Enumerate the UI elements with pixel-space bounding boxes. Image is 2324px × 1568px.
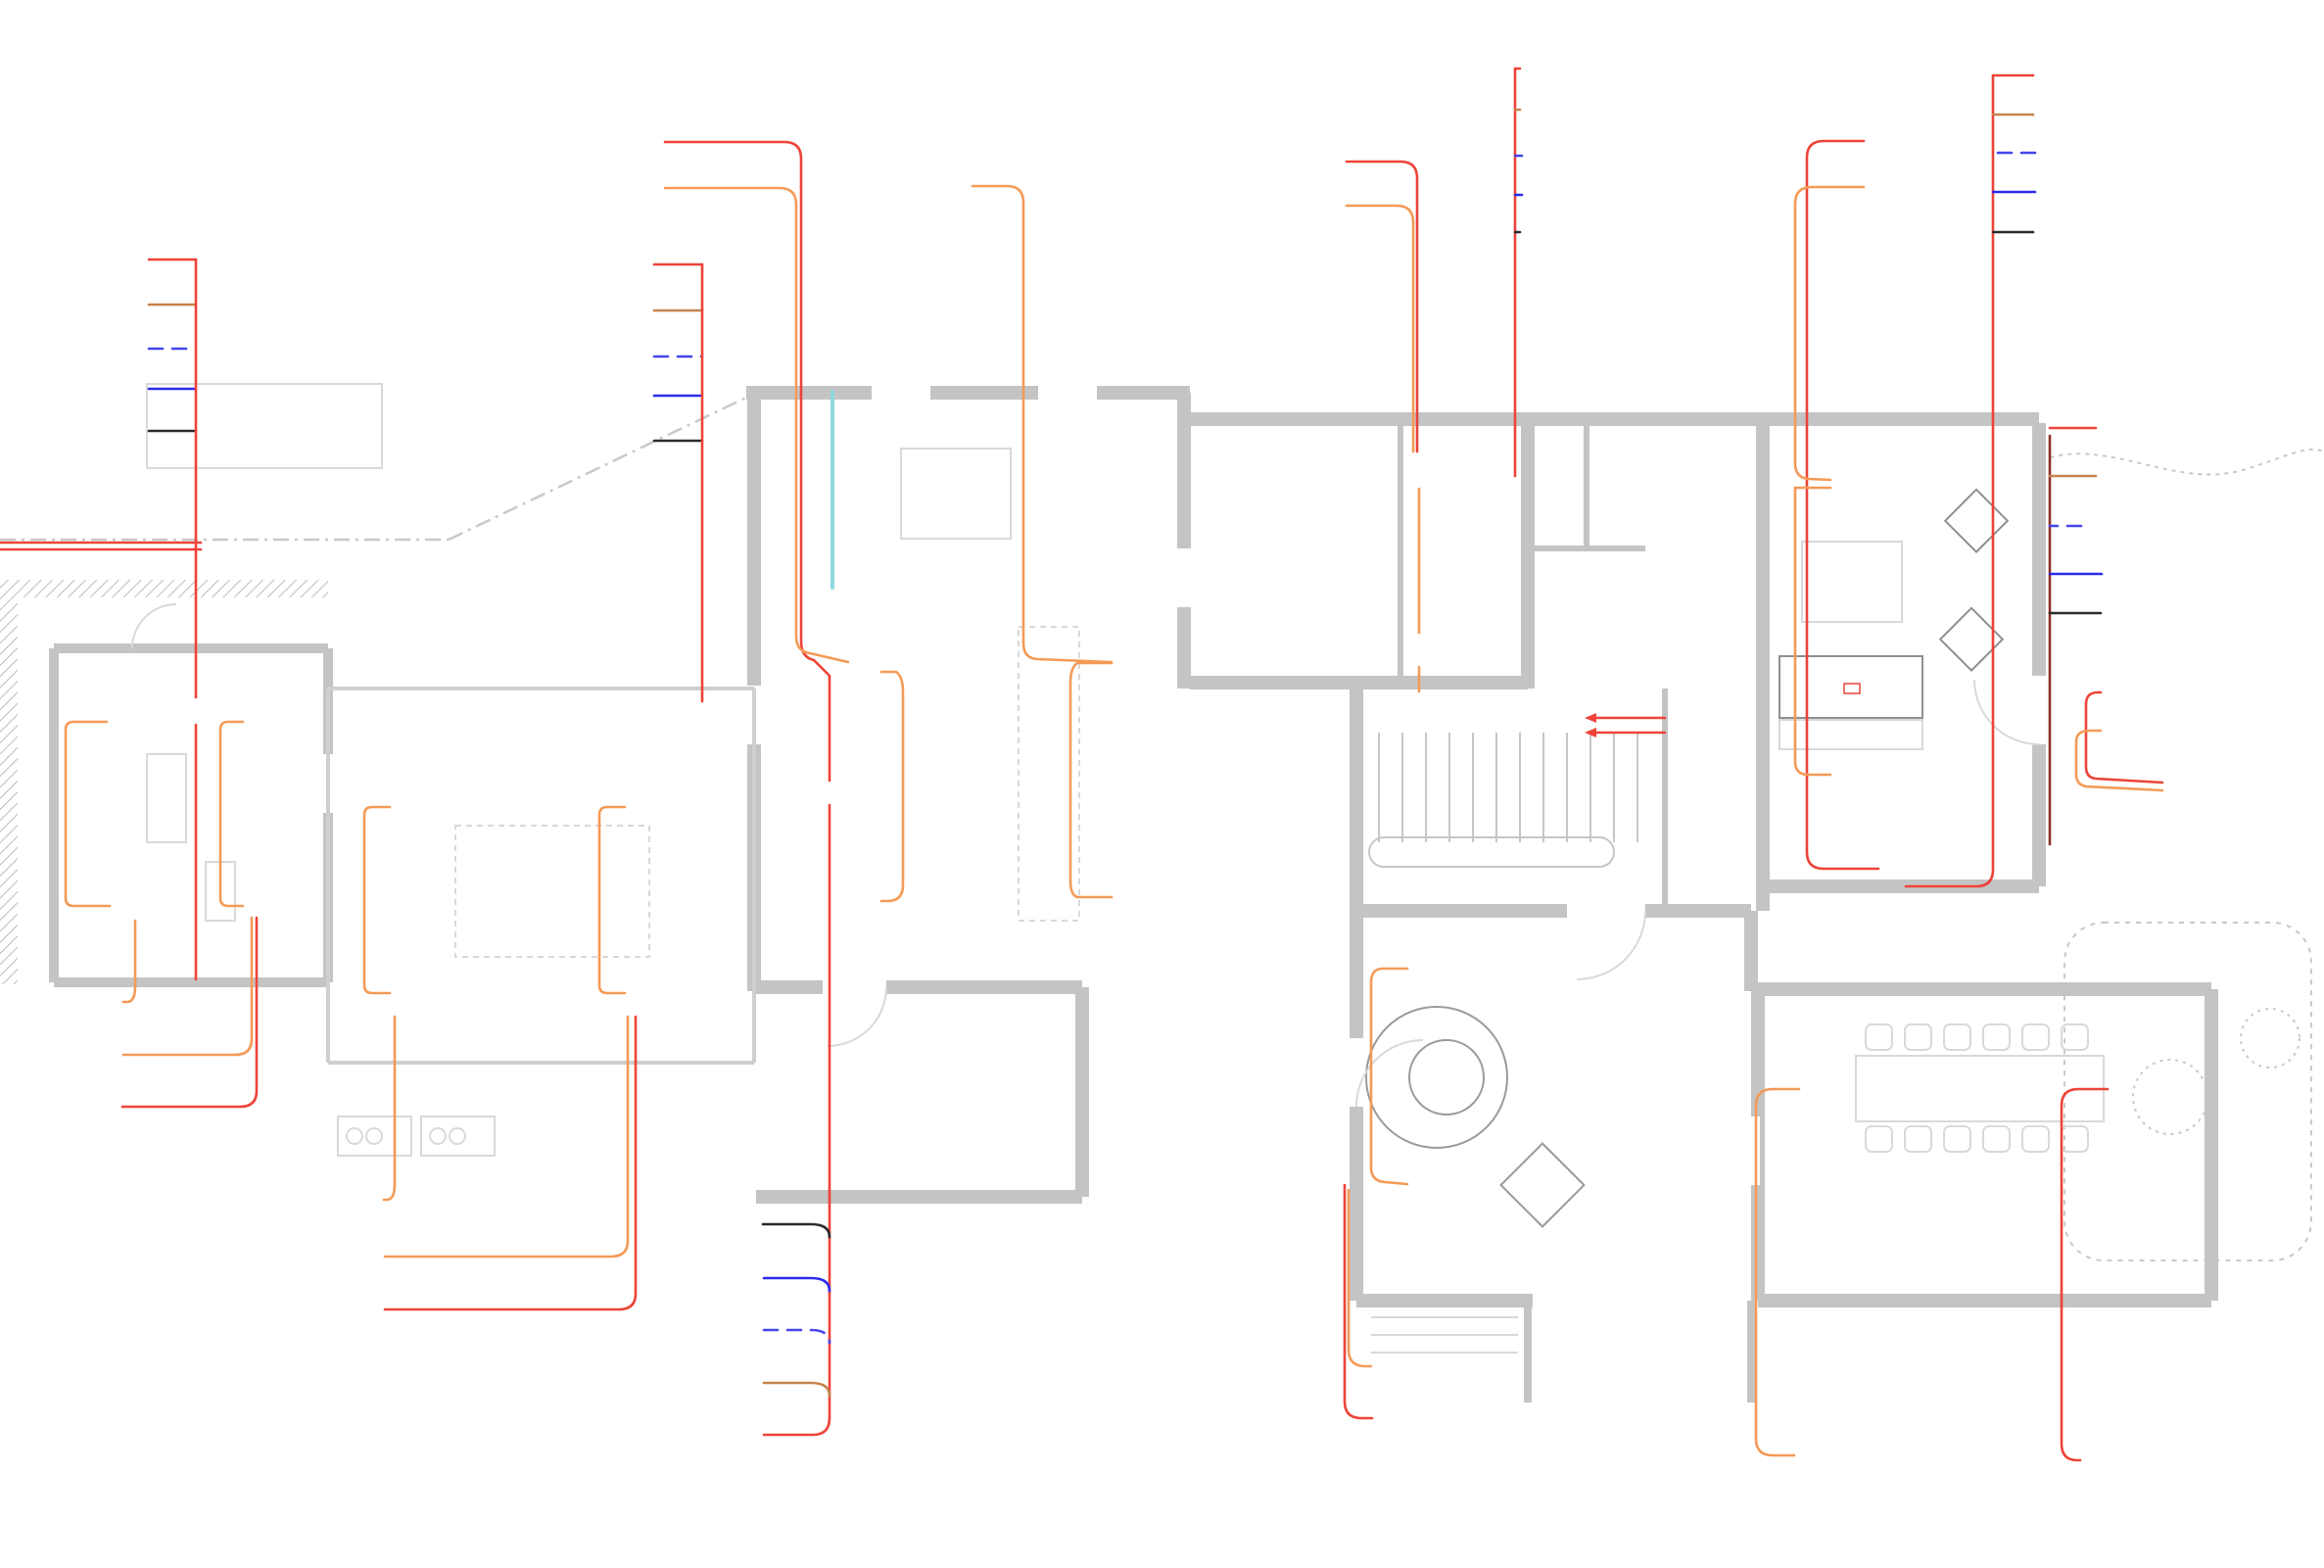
wire-control (764, 1383, 830, 1396)
stair-riser (1379, 733, 1637, 842)
wire-speaker (220, 722, 243, 906)
wire-speaker (384, 1017, 395, 1200)
dining-chair (1983, 1126, 2010, 1152)
dining-chair (1944, 1024, 1970, 1050)
dining-chair (1866, 1024, 1892, 1050)
wire-speaker (1795, 488, 1830, 775)
front-garden-boundary (2064, 923, 2311, 1260)
gym-equipment (147, 754, 186, 842)
hob-ring (347, 1128, 362, 1144)
front-garden-shrub (2241, 1009, 2300, 1068)
av-floor-plan-diagram (0, 0, 2324, 1568)
site-boundaries (0, 384, 2324, 1260)
hatch-wall (0, 597, 18, 984)
wire-network (385, 1017, 636, 1309)
drawing-sofa (1779, 656, 1922, 718)
wire-speaker (972, 186, 1112, 662)
door-arc (132, 604, 176, 648)
drawing-label-box (1802, 542, 1902, 622)
dining-table (901, 449, 1011, 539)
dining-chair (1983, 1024, 2010, 1050)
dining-chair (2062, 1126, 2088, 1152)
sculpture-plinth (1501, 1144, 1585, 1227)
dining-chair (1866, 1126, 1892, 1152)
wire-network (764, 805, 830, 1435)
wire-speaker (364, 807, 390, 993)
stairs (1369, 733, 1637, 867)
bench-unit (338, 1117, 411, 1156)
formal-dining-table (1856, 1056, 2104, 1121)
door-arc (1577, 911, 1645, 979)
dining-chair (1944, 1126, 1970, 1152)
wire-speaker (123, 921, 135, 1002)
door-arc (1974, 680, 2039, 744)
wire-speaker (1070, 663, 1112, 897)
hob-ring (366, 1128, 382, 1144)
dining-chair (2022, 1024, 2049, 1050)
wire-speaker (66, 722, 110, 906)
wire-speaker (599, 807, 625, 993)
hob-ring (450, 1128, 465, 1144)
dining-chair (2022, 1126, 2049, 1152)
wire-fiber (764, 1330, 830, 1343)
walls (54, 393, 2211, 1402)
wire-network (1906, 75, 1993, 886)
wire-speaker (1795, 187, 1864, 480)
dining-chair (1905, 1024, 1931, 1050)
sofa-socket-marker (1844, 684, 1860, 693)
orangery-glass-walls (328, 689, 754, 1063)
reception-table-inner (1409, 1040, 1484, 1115)
front-garden-shrub (2133, 1060, 2207, 1134)
porch-steps (1371, 1317, 1518, 1353)
wire-network (2062, 1089, 2108, 1460)
bench-unit (421, 1117, 495, 1156)
stair-rail (1369, 837, 1614, 867)
neighbor-building (147, 384, 382, 468)
drawing-sofa-base (1779, 720, 1922, 749)
wire-network (2086, 692, 2162, 783)
orangery-table (455, 826, 649, 957)
hob-ring (430, 1128, 446, 1144)
dining-chair (1905, 1126, 1931, 1152)
reception-table-outer (1366, 1007, 1507, 1148)
dining-chair (2062, 1024, 2088, 1050)
wire-network (122, 918, 257, 1107)
boundary-line (449, 396, 750, 540)
drawing-armchair (1945, 490, 2008, 552)
wire-coax (763, 1224, 830, 1237)
wire-network (1807, 141, 1878, 869)
garden-squiggle (2042, 450, 2324, 475)
wire-video (764, 1278, 830, 1291)
red-arrowhead (1585, 713, 1596, 723)
hatch-wall (0, 580, 328, 597)
wire-speaker (1371, 969, 1407, 1184)
wire-speaker (881, 672, 903, 901)
landing-arrows (1585, 684, 1860, 737)
floor-plan-page (0, 0, 2324, 1568)
